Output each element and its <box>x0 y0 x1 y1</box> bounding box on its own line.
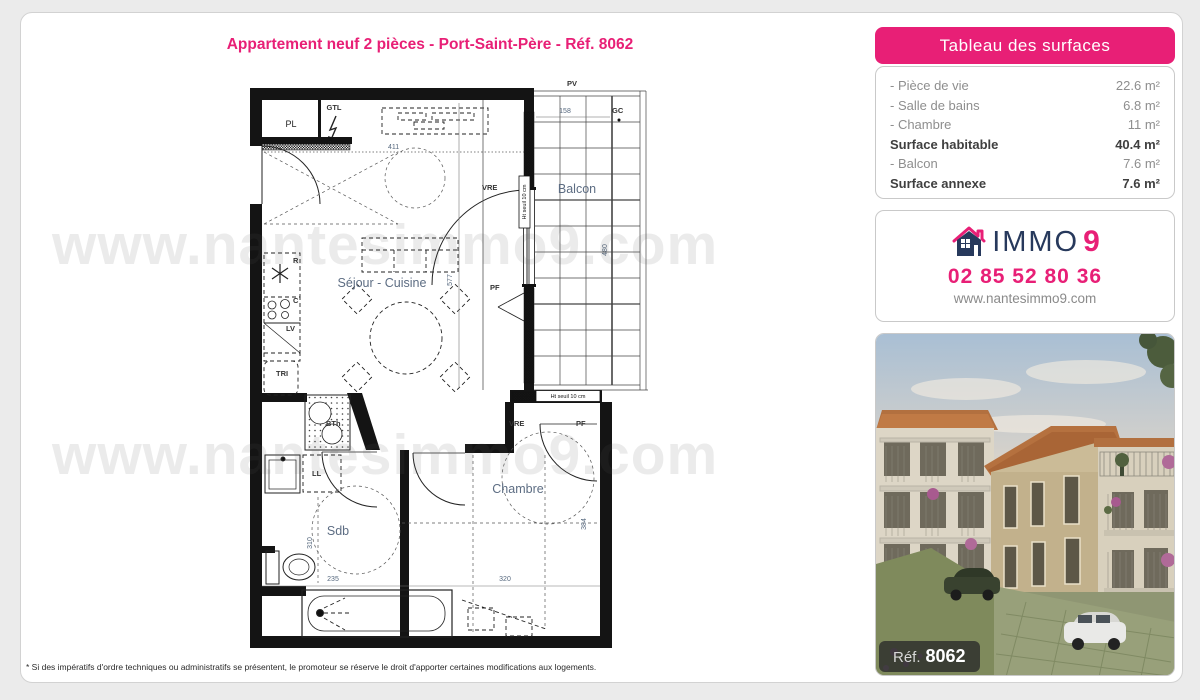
phone-number[interactable]: 02 85 52 80 36 <box>876 265 1174 289</box>
table-row: - Pièce de vie22.6 m² <box>890 76 1160 96</box>
row-value: 11 m² <box>1128 115 1160 135</box>
dim-411: 411 <box>388 144 399 151</box>
seuil-label-v: Ht seuil 10 cm <box>522 184 528 219</box>
building-photo: Réf.8062 <box>875 333 1175 676</box>
label-bth: BTh <box>326 419 341 428</box>
surfaces-table: - Pièce de vie22.6 m² - Salle de bains6.… <box>875 66 1175 199</box>
website-link[interactable]: www.nantesimmo9.com <box>876 291 1174 306</box>
brand-nine-text: 9 <box>1083 225 1100 259</box>
building-render <box>876 334 1175 676</box>
plan-labels: Séjour - Cuisine Chambre Sdb Balcon PL G… <box>276 80 624 583</box>
balcony-decking <box>534 91 648 390</box>
label-pl: PL <box>285 119 296 129</box>
room-sejour: Séjour - Cuisine <box>338 276 427 290</box>
agency-contact-card: IMMO9 02 85 52 80 36 www.nantesimmo9.com <box>875 210 1175 322</box>
dim-480: 480 <box>602 244 609 256</box>
label-pv: PV <box>567 80 577 88</box>
row-value: 7.6 m² <box>1122 174 1160 194</box>
row-value: 40.4 m² <box>1115 135 1160 155</box>
plan-walls <box>250 88 612 648</box>
label-vre-chambre: VRE <box>509 419 524 428</box>
label-r: R <box>293 256 299 265</box>
floor-plan-drawing: Ht seuil 10 cm Ht seuil 10 cm Séjour - C… <box>248 80 652 654</box>
table-row: - Balcon7.6 m² <box>890 154 1160 174</box>
room-balcon: Balcon <box>558 182 596 196</box>
ref-label: Réf. <box>893 649 921 666</box>
row-label: Surface annexe <box>890 174 986 194</box>
label-c: C <box>293 296 299 305</box>
dim-320: 320 <box>499 576 511 583</box>
row-value: 6.8 m² <box>1123 96 1160 116</box>
room-sdb: Sdb <box>327 524 349 538</box>
surfaces-header: Tableau des surfaces <box>875 27 1175 64</box>
plan-fixtures <box>264 116 452 637</box>
dim-577: 577 <box>447 274 454 286</box>
page-title: Appartement neuf 2 pièces - Port-Saint-P… <box>25 36 835 54</box>
table-row-total: Surface annexe7.6 m² <box>890 174 1160 194</box>
dim-310: 310 <box>307 537 314 549</box>
floor-plan: Ht seuil 10 cm Ht seuil 10 cm Séjour - C… <box>248 80 652 654</box>
dim-158: 158 <box>559 108 571 115</box>
footnote: * Si des impératifs d'ordre techniques o… <box>26 662 596 672</box>
plan-dim-lines <box>262 100 600 586</box>
row-label: - Chambre <box>890 115 951 135</box>
row-value: 22.6 m² <box>1116 76 1160 96</box>
table-row: - Chambre11 m² <box>890 115 1160 135</box>
agency-logo: IMMO9 <box>876 225 1174 259</box>
row-label: - Salle de bains <box>890 96 980 116</box>
plan-windows <box>262 112 600 401</box>
label-tri: TRI <box>276 369 288 378</box>
dim-384: 384 <box>581 518 588 530</box>
row-value: 7.6 m² <box>1123 154 1160 174</box>
label-pf-sejour: PF <box>490 283 500 292</box>
table-row-total: Surface habitable40.4 m² <box>890 135 1160 155</box>
label-lv: LV <box>286 324 295 333</box>
row-label: - Pièce de vie <box>890 76 969 96</box>
row-label: - Balcon <box>890 154 938 174</box>
house-icon <box>950 225 988 259</box>
room-chambre: Chambre <box>492 482 543 496</box>
brand-immo-text: IMMO <box>992 226 1079 259</box>
label-pf-chambre: PF <box>576 419 586 428</box>
seuil-label-h: Ht seuil 10 cm <box>551 394 586 400</box>
label-gtl: GTL <box>327 103 342 112</box>
table-row: - Salle de bains6.8 m² <box>890 96 1160 116</box>
label-vre-sejour: VRE <box>482 183 497 192</box>
dim-235: 235 <box>327 576 339 583</box>
row-label: Surface habitable <box>890 135 998 155</box>
label-gc: GC <box>612 106 624 115</box>
ref-number: 8062 <box>926 646 966 666</box>
reference-badge: Réf.8062 <box>879 641 980 672</box>
label-ll: LL <box>312 469 322 478</box>
